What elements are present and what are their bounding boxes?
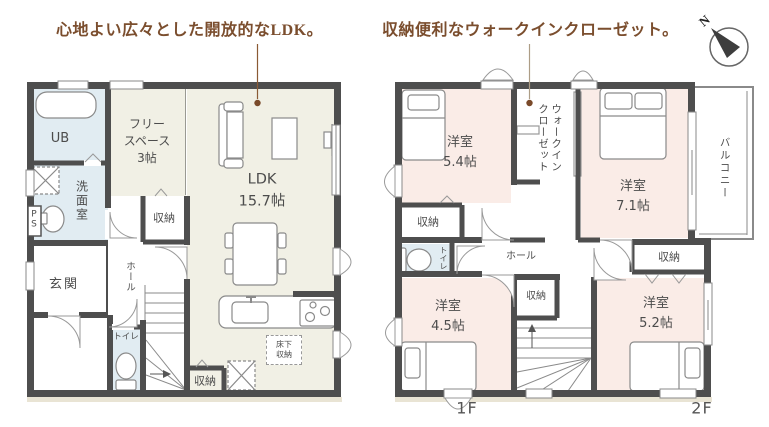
room-label-bedroom-54: 洋室 5.4帖 xyxy=(443,133,477,173)
room-label-bedroom-45: 洋室 4.5帖 xyxy=(431,297,465,337)
room-label-bedroom-71: 洋室 7.1帖 xyxy=(616,177,650,217)
sofa-icon xyxy=(219,102,243,168)
room-label-balcony: バルコニー xyxy=(717,137,730,200)
annotation-ldk: 心地よい広々とした開放的なLDK。 xyxy=(56,16,323,40)
room-label-storage-52: 収納 xyxy=(658,249,680,264)
room-label-washroom: 洗面室 xyxy=(74,180,89,222)
bed-icon-71 xyxy=(600,88,666,159)
leader-line-wic xyxy=(526,44,532,106)
floorplan-2f xyxy=(385,69,754,409)
floor-tag-1f: 1F xyxy=(456,399,477,418)
room-label-entrance: 玄関 xyxy=(49,276,79,294)
underfloor-storage-label: 床下 収納 xyxy=(266,335,302,365)
room-label-free-space: フリー スペース 3帖 xyxy=(124,116,171,166)
dining-table-icon xyxy=(225,223,286,285)
floorplan-1f xyxy=(26,81,351,402)
coffee-table-icon xyxy=(272,118,297,159)
room-label-walk-in-closet: ウォークイン クローゼット xyxy=(536,104,562,173)
bathtub-icon xyxy=(36,92,96,118)
toilet-icon-1f xyxy=(116,353,136,390)
stairs-1f xyxy=(145,285,186,391)
room-label-bedroom-52: 洋室 5.2帖 xyxy=(639,294,673,334)
room-label-ldk: LDK 15.7帖 xyxy=(239,169,286,214)
toilet-icon-2f xyxy=(399,248,431,272)
room-label-hall-1f: ホール xyxy=(123,261,135,293)
room-label-storage-54: 収納 xyxy=(417,214,439,229)
room-label-ps: P S xyxy=(31,210,37,231)
floor-tag-2f: 2F xyxy=(691,399,712,418)
room-label-toilet-1f: トイレ xyxy=(113,332,139,344)
ground-strip-1f xyxy=(27,397,342,402)
stove-icon xyxy=(300,300,336,326)
refrigerator-space-icon xyxy=(228,361,255,390)
washing-machine-space-icon xyxy=(32,167,59,194)
bed-icon-54 xyxy=(402,90,445,160)
bed-icon-45 xyxy=(401,342,476,391)
bed-icon-52 xyxy=(630,342,704,391)
room-label-toilet-2f: トイレ xyxy=(438,246,448,270)
floor-plan-page: 心地よい広々とした開放的なLDK。 収納便利なウォークインクローゼット。 N U… xyxy=(0,0,769,427)
room-label-ub: UB xyxy=(51,130,69,148)
compass-icon xyxy=(710,28,748,66)
room-label-storage-bottom-1f: 収納 xyxy=(194,373,216,388)
room-label-hall-2f: ホール xyxy=(506,250,536,264)
annotation-wic: 収納便利なウォークインクローゼット。 xyxy=(382,16,679,40)
stairs-2f xyxy=(517,324,591,391)
room-label-storage-mid-1f: 収納 xyxy=(153,210,175,225)
floor-plan-drawing xyxy=(0,0,769,427)
room-label-storage-center: 収納 xyxy=(526,290,546,304)
